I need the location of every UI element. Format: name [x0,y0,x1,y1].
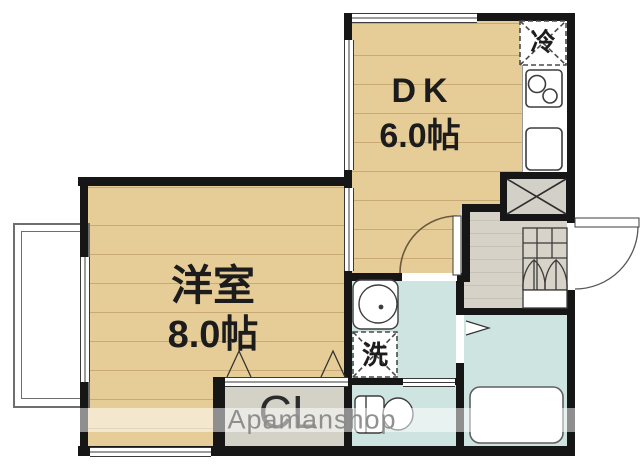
dk-room-name: DK [391,74,454,108]
washer-label: 洗 [362,342,388,368]
western-room-name: 洋室 [171,265,255,307]
washroom-door [400,216,461,275]
vanity-sink-icon [353,280,398,329]
shoe-cabinet [523,228,567,308]
western-room-size: 8.0帖 [168,316,259,354]
fixtures-overlay [0,0,640,471]
watermark-text: Apamanshop [227,405,396,436]
kitchen-sink-icon [526,128,562,170]
bath-folding-door-icon [466,321,489,335]
stove-icon [526,70,562,107]
floor-plan: DK 6.0帖 洋室 8.0帖 冷 洗 CL Apamanshop [0,0,640,471]
dk-room-size: 6.0帖 [379,119,460,153]
pipe-shaft-cross [507,179,566,214]
entrance-door [575,218,639,289]
fridge-label: 冷 [530,31,555,56]
